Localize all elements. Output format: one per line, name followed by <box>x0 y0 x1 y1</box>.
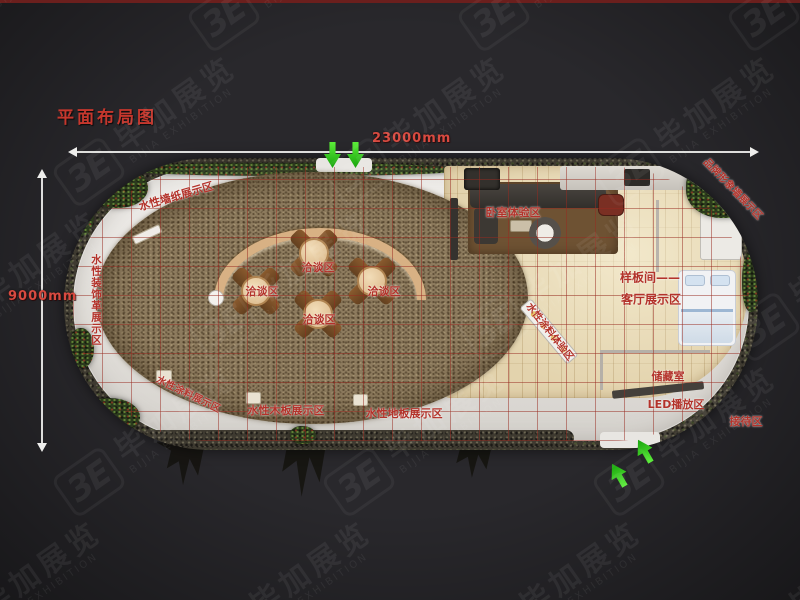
watermark: 3E毕加展览BIJIA EXHIBITION <box>0 514 116 600</box>
partition-wall <box>656 200 659 272</box>
dimension-line-left <box>41 172 43 444</box>
arc-end-table <box>208 290 224 306</box>
bijia-logo-icon: 3E <box>185 0 262 54</box>
plant-cluster <box>290 426 316 444</box>
zone-label-floor-display: 水性地板展示区 <box>366 405 443 421</box>
plant-cluster <box>82 398 140 434</box>
watermark: 3E毕加展览BIJIA EXHIBITION <box>725 514 800 600</box>
dimension-width-label: 23000mm <box>372 131 451 146</box>
entrance-gap-top <box>316 158 372 172</box>
dimension-arrow-left-icon <box>63 147 77 157</box>
bijia-logo-icon: 3E <box>455 0 532 54</box>
dimension-line-top <box>70 151 752 153</box>
page: { "title": "平面布局图", "dimensions": { "top… <box>0 0 800 600</box>
zone-label-meeting-area: 洽谈区 <box>368 283 401 299</box>
zone-label-meeting-area: 洽谈区 <box>246 283 279 299</box>
zone-label-model-room: 样板间—— <box>620 269 680 286</box>
watermark: 3E毕加展览BIJIA EXHIBITION <box>455 0 655 54</box>
entrance-arrow-icon <box>605 459 633 490</box>
watermark: 3E毕加展览BIJIA EXHIBITION <box>0 0 116 54</box>
pillow <box>710 275 730 286</box>
plant-cluster <box>68 192 94 236</box>
blanket <box>681 309 733 343</box>
top-accent-line <box>0 0 800 3</box>
zone-label-meeting-area: 洽谈区 <box>303 311 336 327</box>
page-title: 平面布局图 <box>57 103 157 128</box>
entrance-gap-bottom <box>600 432 660 448</box>
dimension-arrow-right-icon <box>750 147 764 157</box>
range-hood <box>464 168 500 190</box>
bijia-logo-icon: 3E <box>725 0 800 54</box>
watermark: 3E毕加展览BIJIA EXHIBITION <box>725 0 800 54</box>
zone-label-bedroom-experience: 卧室体验区 <box>486 204 541 220</box>
zone-label-meeting-area: 洽谈区 <box>302 259 335 275</box>
zone-label-led-area: LED播放区 <box>648 396 705 412</box>
bijia-logo-icon: 3E <box>320 445 397 519</box>
zone-label-decor-film-display: 水性装饰革展示区 <box>89 254 104 346</box>
zone-label-storage-room: 储藏室 <box>652 368 685 384</box>
bijia-logo-icon: 3E <box>50 445 127 519</box>
dining-set <box>529 217 561 249</box>
storage-wall <box>600 350 710 353</box>
dimension-height-label: 9000mm <box>8 289 77 304</box>
bijia-logo-icon: 3E <box>590 445 667 519</box>
dimension-arrow-down-icon <box>37 443 47 457</box>
storage-wall <box>600 350 603 390</box>
watermark: 3E毕加展览BIJIA EXHIBITION <box>185 0 385 54</box>
zone-label-reception: 接待区 <box>730 413 763 429</box>
zone-label-living-room-display: 客厅展示区 <box>621 291 681 308</box>
bed <box>678 270 736 346</box>
dimension-arrow-up-icon <box>37 164 47 178</box>
zone-label-wood-board-display: 水性木板展示区 <box>248 402 325 418</box>
cooktop <box>624 169 650 186</box>
watermark: 3E毕加展览BIJIA EXHIBITION <box>455 514 655 600</box>
watermark: 3E毕加展览BIJIA EXHIBITION <box>185 514 385 600</box>
tv-wall <box>450 198 458 260</box>
pillow <box>685 275 705 286</box>
meeting-table-group <box>282 221 346 285</box>
armchair <box>598 194 624 216</box>
bottom-gravel-band <box>144 430 574 446</box>
plant-cluster <box>742 254 758 312</box>
